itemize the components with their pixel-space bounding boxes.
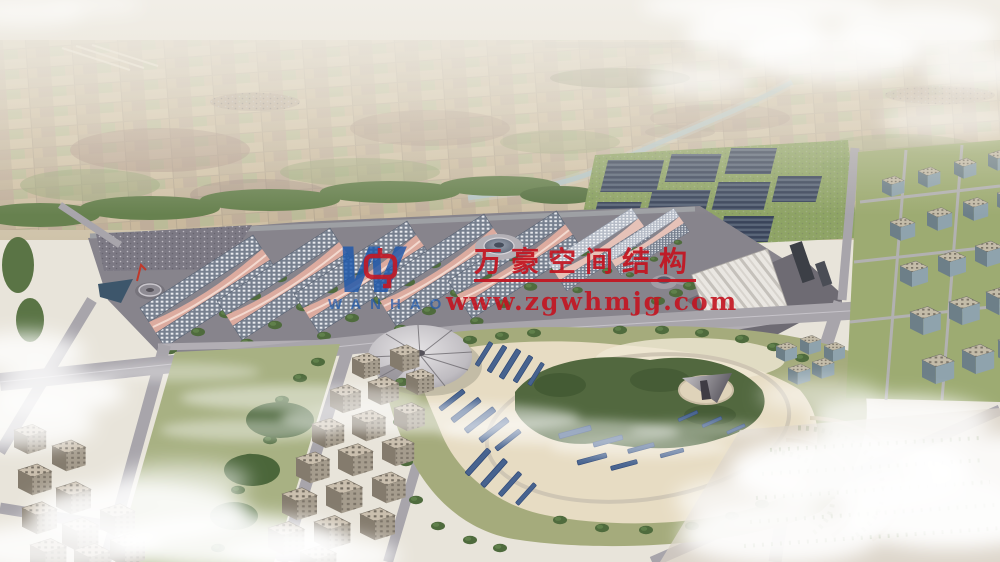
watermark-title: 万豪空间结构 (474, 247, 696, 282)
cone-structure (679, 373, 733, 404)
brand-logo: W (334, 240, 426, 302)
watermark-url: www.zgwhmjg.com (446, 287, 738, 316)
aerial-rendering-screenshot: W WANHAO 万豪空间结构 www.zgwhmjg.com (0, 0, 1000, 562)
brand-name-text: WANHAO (328, 296, 450, 313)
